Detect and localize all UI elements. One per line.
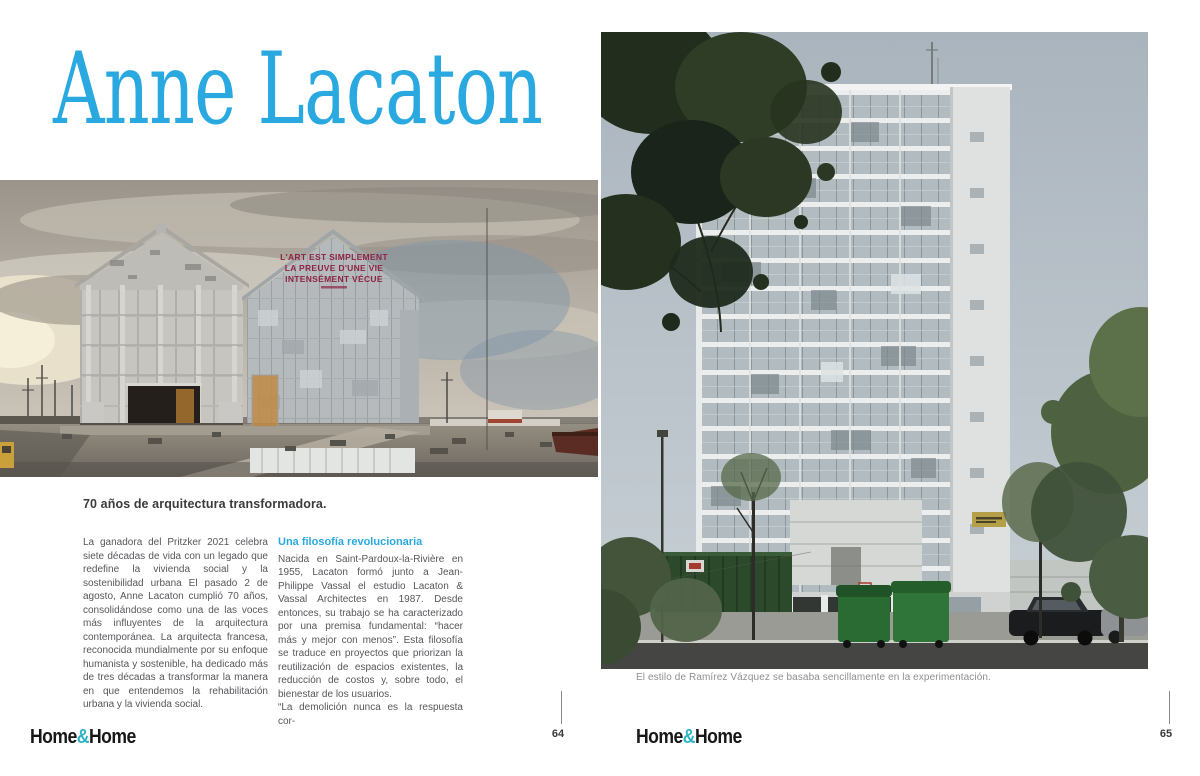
logo-word-2: Home <box>89 726 136 748</box>
magazine-logo-right: Home&Home <box>636 726 742 749</box>
dumpsters <box>836 581 951 648</box>
folio-rule-left <box>561 691 562 724</box>
svg-text:LA PREUVE D'UNE VIE: LA PREUVE D'UNE VIE <box>285 263 384 273</box>
stair-tower <box>400 310 419 423</box>
section-heading: 70 años de arquitectura transformadora. <box>83 497 327 511</box>
svg-text:L'ART EST SIMPLEMENT: L'ART EST SIMPLEMENT <box>280 252 388 262</box>
body-column-2: Una filosofía revolucionaria Nacida en S… <box>278 536 463 728</box>
harbor-wall <box>0 416 80 424</box>
magazine-spread: Anne Lacaton <box>0 0 1200 776</box>
folio-rule-right <box>1169 691 1170 724</box>
amber-window <box>252 375 278 427</box>
body-paragraph-philosophy: Nacida en Saint-Pardoux-la-Rivière en 19… <box>278 553 463 702</box>
building-quote-text: L'ART EST SIMPLEMENT LA PREUVE D'UNE VIE… <box>280 252 388 289</box>
white-annex <box>790 500 922 585</box>
page-number-left: 64 <box>546 728 570 740</box>
article-title: Anne Lacaton <box>53 40 542 139</box>
subsection-heading: Una filosofía revolucionaria <box>278 536 463 550</box>
photo-caption: El estilo de Ramírez Vázquez se basaba s… <box>636 672 991 683</box>
body-column-1: La ganadora del Pritzker 2021 celebra si… <box>83 536 268 728</box>
body-paragraph-intro: La ganadora del Pritzker 2021 celebra si… <box>83 536 268 712</box>
magazine-logo-left: Home&Home <box>30 726 136 749</box>
body-columns: La ganadora del Pritzker 2021 celebra si… <box>83 536 463 728</box>
body-paragraph-quote: “La demolición nunca es la respuesta cor… <box>278 701 463 728</box>
left-photo-industrial-halls: L'ART EST SIMPLEMENT LA PREUVE D'UNE VIE… <box>0 180 598 477</box>
logo-ampersand: & <box>683 726 695 748</box>
right-photo-scene <box>601 32 1148 669</box>
logo-word-2: Home <box>695 726 742 748</box>
page-number-right: 65 <box>1154 728 1178 740</box>
logo-word-1: Home <box>30 726 77 748</box>
svg-text:INTENSÉMENT VÉCUE: INTENSÉMENT VÉCUE <box>285 274 383 284</box>
yellow-vehicle <box>0 442 14 468</box>
logo-ampersand: & <box>77 726 89 748</box>
right-photo-residential-tower <box>601 32 1148 669</box>
logo-word-1: Home <box>636 726 683 748</box>
left-photo-scene: L'ART EST SIMPLEMENT LA PREUVE D'UNE VIE… <box>0 180 598 477</box>
door-amber-light <box>176 389 194 425</box>
